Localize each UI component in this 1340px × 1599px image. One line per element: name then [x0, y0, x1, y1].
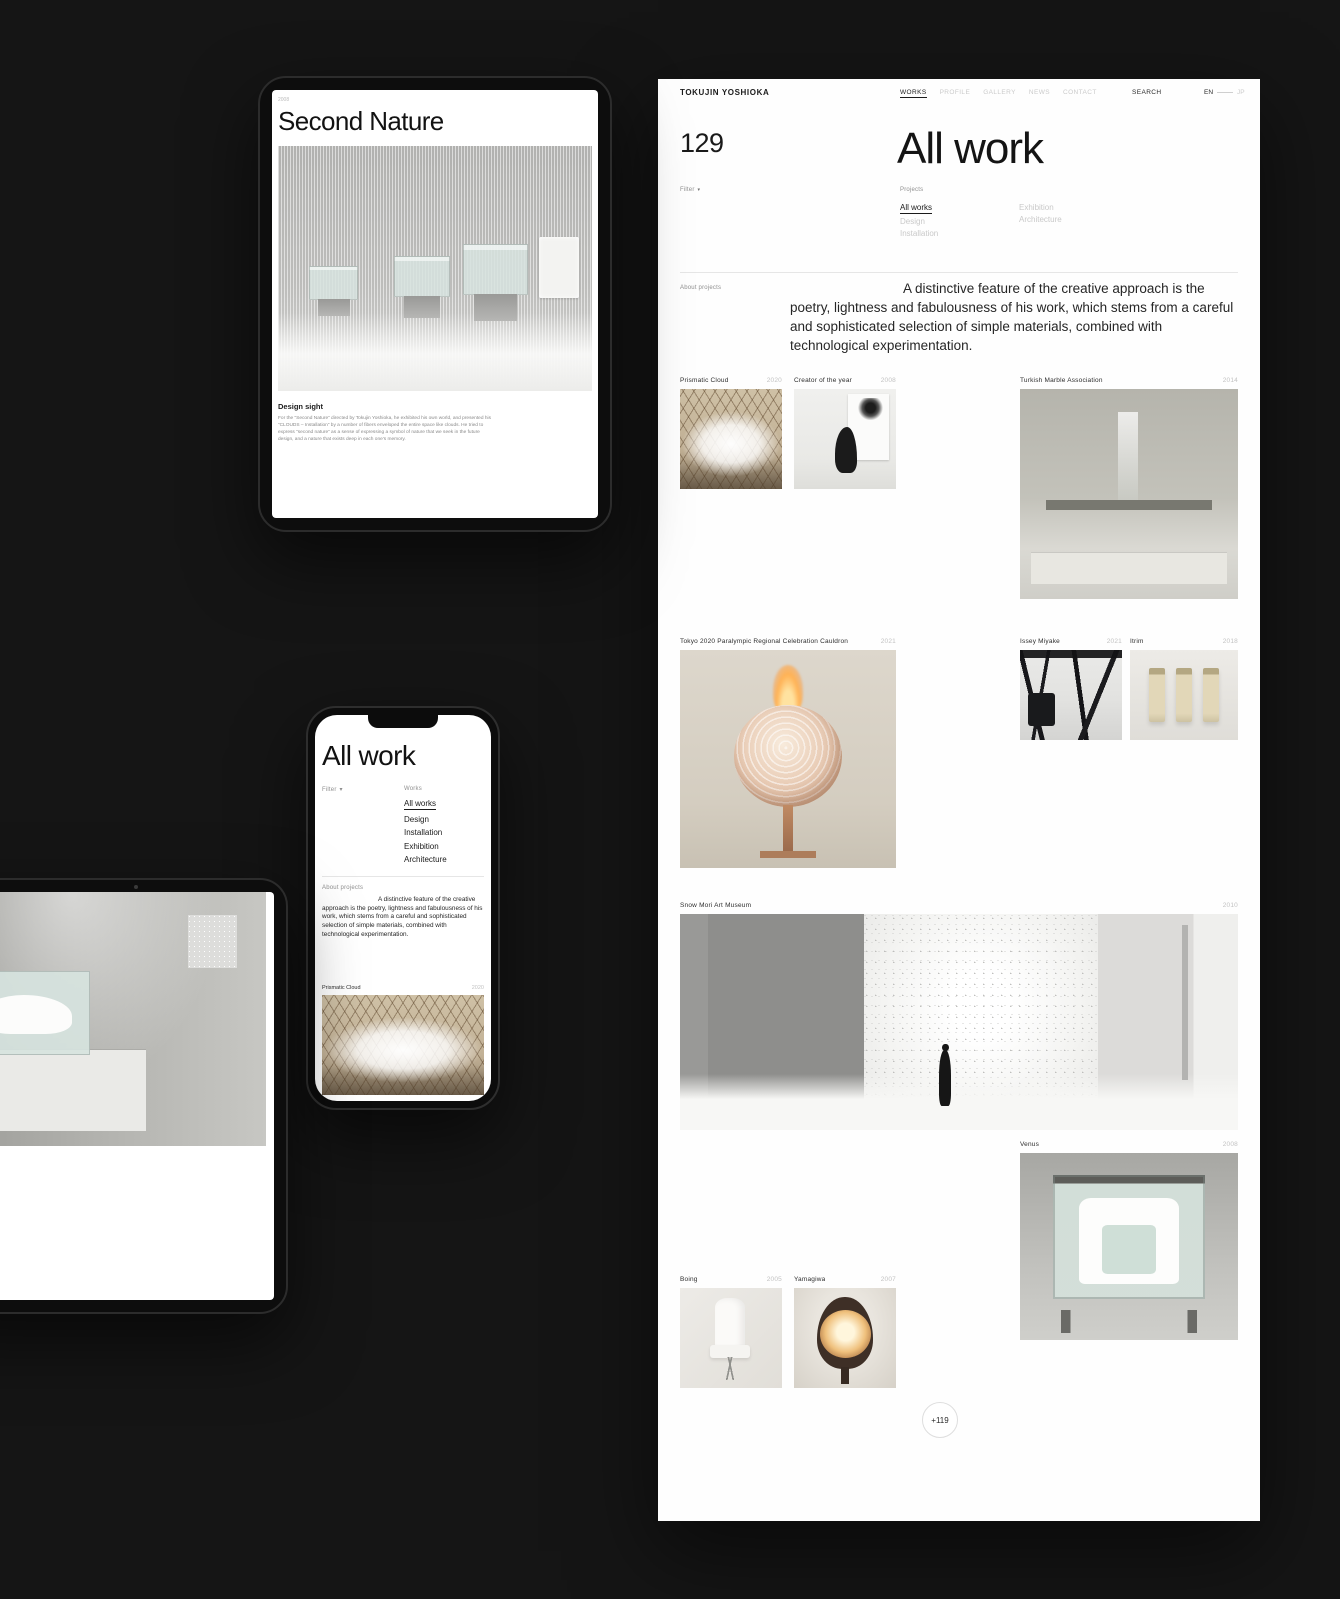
project-card-venus[interactable]: Venus 2008: [1020, 1141, 1238, 1340]
phone-notch: [368, 715, 438, 728]
category-exhibition[interactable]: Exhibition: [1019, 203, 1062, 212]
snow-chair-shape: [1079, 1198, 1179, 1284]
chair-legs-shape: [711, 1357, 750, 1380]
lang-en[interactable]: EN: [1204, 89, 1213, 96]
project-card-itrim[interactable]: Itrim 2018: [1130, 638, 1238, 740]
card-year: 2021: [877, 638, 896, 645]
chair-back-shape: [715, 1298, 746, 1350]
nav-item-gallery[interactable]: GALLERY: [983, 89, 1016, 98]
lang-jp[interactable]: JP: [1237, 89, 1245, 96]
card-title: Prismatic Cloud: [680, 377, 729, 384]
card-year: 2014: [1219, 377, 1238, 384]
project-image-itrim: [1130, 650, 1238, 740]
door-frame-shape: [1182, 925, 1188, 1081]
snow-artwork-shape: [539, 237, 580, 298]
card-caption: Itrim 2018: [1130, 638, 1238, 650]
camera-dot-icon: [134, 885, 138, 889]
phone-works-label: Works: [404, 786, 422, 792]
phone-card-caption: Prismatic Cloud 2020: [322, 985, 484, 991]
nav-item-profile[interactable]: PROFILE: [940, 89, 971, 98]
card-title: Yamagiwa: [794, 1276, 825, 1283]
presentation-canvas: TOKUJIN YOSHIOKA WORKS PROFILE GALLERY N…: [0, 0, 1340, 1599]
card-title: Issey Miyake: [1020, 638, 1060, 645]
card-caption: Issey Miyake 2021: [1020, 638, 1122, 650]
phone-project-image-prismatic-cloud: [322, 995, 484, 1095]
card-title: Prismatic Cloud: [322, 985, 361, 991]
card-year: 2005: [763, 1276, 782, 1283]
section-divider: [680, 272, 1238, 273]
card-title: Snow Mori Art Museum: [680, 902, 751, 909]
project-card-prismatic-cloud[interactable]: Prismatic Cloud 2020: [680, 377, 782, 489]
category-column-2: Exhibition Architecture: [1019, 203, 1062, 224]
desktop-browser-page: TOKUJIN YOSHIOKA WORKS PROFILE GALLERY N…: [658, 79, 1260, 1521]
phone-about-label: About projects: [322, 885, 363, 891]
category-architecture: Architecture: [404, 855, 447, 864]
project-image-snow-mori: [680, 914, 1238, 1130]
card-title: Itrim: [1130, 638, 1144, 645]
glass-tank-shape: [309, 266, 358, 300]
project-image-creator-of-the-year: [794, 389, 896, 489]
tablet-page-title: Second Nature: [278, 106, 444, 137]
wall-art-shape: [188, 915, 237, 968]
tablet-screen: 2008 Second Nature Design sight For the …: [272, 90, 598, 518]
category-architecture[interactable]: Architecture: [1019, 215, 1062, 224]
nav-item-works[interactable]: WORKS: [900, 89, 927, 98]
glass-tank-shape: [0, 971, 90, 1054]
card-title: Creator of the year: [794, 377, 852, 384]
project-card-snow-mori[interactable]: Snow Mori Art Museum 2010: [680, 902, 1238, 1130]
pedestal-shape: [0, 1050, 146, 1131]
bottle-shape: [1149, 668, 1165, 722]
chevron-down-icon: ▾: [698, 187, 701, 193]
projects-label: Projects: [900, 187, 923, 193]
project-image-yamagiwa: [794, 1288, 896, 1388]
card-year: 2020: [472, 985, 484, 991]
brand-logo[interactable]: TOKUJIN YOSHIOKA: [680, 88, 769, 97]
flower-sphere-shape: [734, 705, 842, 807]
tablet-section-heading: Design sight: [278, 402, 323, 411]
project-card-turkish-marble[interactable]: Turkish Marble Association 2014: [1020, 377, 1238, 599]
card-caption: Tokyo 2020 Paralympic Regional Celebrati…: [680, 638, 896, 650]
phone-about-text: A distinctive feature of the creative ap…: [322, 896, 484, 940]
card-caption: Yamagiwa 2007: [794, 1276, 896, 1288]
stand-stem-shape: [783, 805, 794, 855]
tablet-mockup-landscape: [0, 878, 288, 1314]
card-year: 2020: [763, 377, 782, 384]
project-card-boing[interactable]: Boing 2005: [680, 1276, 782, 1388]
card-year: 2021: [1103, 638, 1122, 645]
section-divider: [322, 876, 484, 877]
phone-filter-dropdown: Filter ▾: [322, 786, 343, 793]
tablet-mockup: 2008 Second Nature Design sight For the …: [258, 76, 612, 532]
stand-base-shape: [760, 851, 816, 859]
phone-screen: All work Filter ▾ Works All works Design…: [315, 715, 491, 1101]
project-image-venus: [1020, 1153, 1238, 1340]
marble-slab-shape: [1046, 500, 1212, 509]
phone-category-list: All works Design Installation Exhibition…: [404, 799, 447, 864]
glass-tank-shape: [394, 256, 449, 297]
card-year: 2007: [877, 1276, 896, 1283]
filter-label: Filter: [680, 187, 695, 193]
card-year: 2008: [877, 377, 896, 384]
card-year: 2008: [1219, 1141, 1238, 1148]
project-image-boing: [680, 1288, 782, 1388]
nav-item-news[interactable]: NEWS: [1029, 89, 1050, 98]
card-year: 2010: [1219, 902, 1238, 909]
category-installation[interactable]: Installation: [900, 229, 938, 238]
filter-dropdown[interactable]: Filter ▾: [680, 187, 700, 193]
bottle-shape: [1176, 668, 1192, 722]
category-all-works: All works: [404, 799, 436, 810]
gallery-image-installation-room: [0, 892, 266, 1146]
glass-tank-shape: [463, 244, 528, 295]
card-caption: Turkish Marble Association 2014: [1020, 377, 1238, 389]
bottle-shape: [1203, 668, 1219, 722]
tank-legs-shape: [1061, 1310, 1196, 1332]
tablet-body-text: For the “Second Nature” directed by Toku…: [278, 415, 492, 443]
card-caption: Creator of the year 2008: [794, 377, 896, 389]
card-title: Tokyo 2020 Paralympic Regional Celebrati…: [680, 638, 848, 645]
search-button[interactable]: SEARCH: [1132, 89, 1162, 96]
tablet-screen: [0, 892, 274, 1300]
category-design[interactable]: Design: [900, 217, 938, 226]
card-year: 2018: [1219, 638, 1238, 645]
card-caption: Boing 2005: [680, 1276, 782, 1288]
card-title: Boing: [680, 1276, 698, 1283]
project-card-creator-of-the-year[interactable]: Creator of the year 2008: [794, 377, 896, 489]
filter-label: Filter: [322, 787, 337, 793]
language-switcher[interactable]: EN JP: [1204, 89, 1245, 96]
pedestal-shape: [1031, 553, 1227, 585]
project-image-issey-miyake: [1020, 650, 1122, 740]
glass-pane-shape: [1118, 412, 1138, 504]
project-card-yamagiwa[interactable]: Yamagiwa 2007: [794, 1276, 896, 1388]
phone-mockup: All work Filter ▾ Works All works Design…: [306, 706, 500, 1110]
tablet-project-year: 2008: [278, 97, 289, 103]
tablet-hero-image: [278, 146, 592, 391]
works-count: 129: [680, 128, 724, 159]
project-card-paralympic-cauldron[interactable]: Tokyo 2020 Paralympic Regional Celebrati…: [680, 638, 896, 868]
category-all-works[interactable]: All works: [900, 203, 932, 214]
load-more-button[interactable]: +119: [922, 1402, 958, 1438]
about-projects-label: About projects: [680, 285, 721, 291]
person-silhouette: [939, 1050, 951, 1106]
category-design: Design: [404, 815, 447, 824]
chevron-down-icon: ▾: [340, 786, 343, 793]
flower-art-shape: [858, 398, 882, 420]
phone-page-title: All work: [322, 740, 415, 772]
card-title: Venus: [1020, 1141, 1039, 1148]
project-card-issey-miyake[interactable]: Issey Miyake 2021: [1020, 638, 1122, 740]
card-caption: Snow Mori Art Museum 2010: [680, 902, 1238, 914]
card-title: Turkish Marble Association: [1020, 377, 1103, 384]
nav-item-contact[interactable]: CONTACT: [1063, 89, 1097, 98]
project-image-paralympic-cauldron: [680, 650, 896, 868]
lamp-stem-shape: [841, 1367, 849, 1384]
about-projects-text: A distinctive feature of the creative ap…: [790, 279, 1238, 355]
snow-floor-shape: [680, 1074, 1238, 1130]
lang-toggle-line: [1217, 92, 1233, 93]
card-caption: Venus 2008: [1020, 1141, 1238, 1153]
project-image-turkish-marble: [1020, 389, 1238, 599]
category-column-1: All works Design Installation: [900, 203, 938, 238]
category-exhibition: Exhibition: [404, 842, 447, 851]
main-nav: WORKS PROFILE GALLERY NEWS CONTACT: [900, 89, 1097, 98]
page-title: All work: [897, 124, 1043, 174]
lamp-glow-shape: [820, 1310, 871, 1358]
category-installation: Installation: [404, 828, 447, 837]
card-caption: Prismatic Cloud 2020: [680, 377, 782, 389]
project-image-prismatic-cloud: [680, 389, 782, 489]
